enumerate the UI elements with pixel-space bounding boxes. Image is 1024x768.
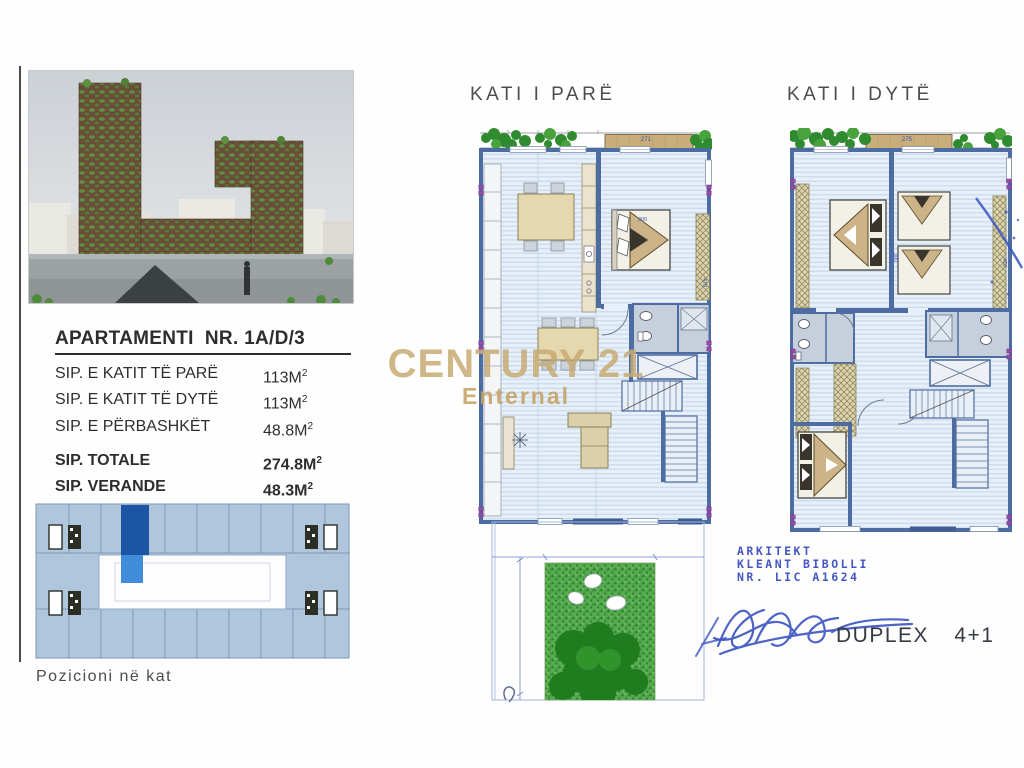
area-value: 113M2 [263, 363, 307, 389]
area-label: SIP. E PËRBASHKËT [55, 416, 263, 442]
closet-icon [796, 184, 809, 308]
room-dimension: 470 [701, 278, 707, 287]
ceiling-fan-icon [512, 432, 528, 448]
area-label: SIP. E KATIT TË DYTË [55, 389, 263, 415]
area-row: SIP. E KATIT TË PARË 113M2 [55, 363, 357, 389]
building-photo [28, 70, 354, 304]
bathroom-icon [792, 313, 854, 363]
dining-table2-icon [538, 318, 598, 370]
double-bed-icon [830, 200, 886, 270]
elevator-icon [638, 355, 697, 379]
floor-plan-first-art: 271 [478, 128, 712, 526]
area-value: 48.8M2 [263, 416, 313, 442]
deck-dimension: 275 [902, 137, 913, 143]
architect-block: ARKITEKT KLEANT BIBOLLI NR. LIC A1624 [737, 545, 869, 584]
building-photo-art [29, 71, 353, 303]
area-label: SIP. TOTALE [55, 450, 263, 476]
bathroom-icon [926, 311, 1010, 357]
unit-highlight-dark [121, 505, 149, 555]
key-plan-art [35, 503, 350, 659]
tv-cabinet-icon [503, 417, 514, 469]
garden-plot [488, 518, 710, 710]
area-row: SIP. E KATIT TË DYTË 113M2 [55, 389, 357, 415]
unit-type-label: DUPLEX 4+1 [836, 624, 995, 648]
area-row-veranda: SIP. VERANDE 48.3M2 [55, 476, 357, 502]
area-row: SIP. E PËRBASHKËT 48.8M2 [55, 416, 357, 442]
single-bed-icon [898, 246, 950, 294]
apartment-info: APARTAMENTI NR. 1A/D/3 SIP. E KATIT TË P… [55, 328, 357, 503]
kitchen-counter-icon [582, 164, 596, 312]
floor-plan-second-art: 275 [790, 128, 1012, 532]
elevator-icon [930, 360, 990, 386]
room-dimension: 300 [638, 217, 647, 223]
closet-icon [796, 368, 809, 438]
room-dimension: 300 [892, 253, 898, 262]
bedroom-divider-wall [889, 150, 894, 310]
person-silhouette [244, 267, 250, 295]
garden-art [488, 518, 710, 705]
pen-arc-mark [948, 190, 1024, 310]
pen-a-mark [692, 610, 736, 662]
single-bed-icon [898, 192, 950, 240]
unit-highlight-light [121, 555, 143, 583]
area-value: 113M2 [263, 389, 307, 415]
bathroom-icon [633, 304, 710, 353]
foreground-roof [29, 254, 353, 303]
scan-page: APARTAMENTI NR. 1A/D/3 SIP. E KATIT TË P… [0, 0, 1024, 768]
bedroom-wall [596, 150, 601, 308]
double-bed-icon [798, 432, 846, 498]
area-value: 274.8M2 [263, 450, 322, 476]
kitchen-cabinets-icon [484, 164, 501, 516]
plan2-title: KATI I DYTË [787, 84, 933, 106]
area-label: SIP. VERANDE [55, 476, 263, 502]
area-value: 48.3M2 [263, 476, 313, 502]
area-label: SIP. E KATIT TË PARË [55, 363, 263, 389]
deck-dimension: 271 [641, 137, 652, 143]
area-row-total: SIP. TOTALE 274.8M2 [55, 450, 357, 476]
position-caption: Pozicioni në kat [36, 668, 172, 686]
floor-plan-first: 271 [478, 128, 712, 531]
plan1-title: KATI I PARË [470, 84, 616, 106]
floor-key-plan [35, 503, 350, 659]
left-border-line [19, 66, 21, 662]
apartment-title: APARTAMENTI NR. 1A/D/3 [55, 328, 351, 355]
signature-icon [712, 580, 922, 660]
